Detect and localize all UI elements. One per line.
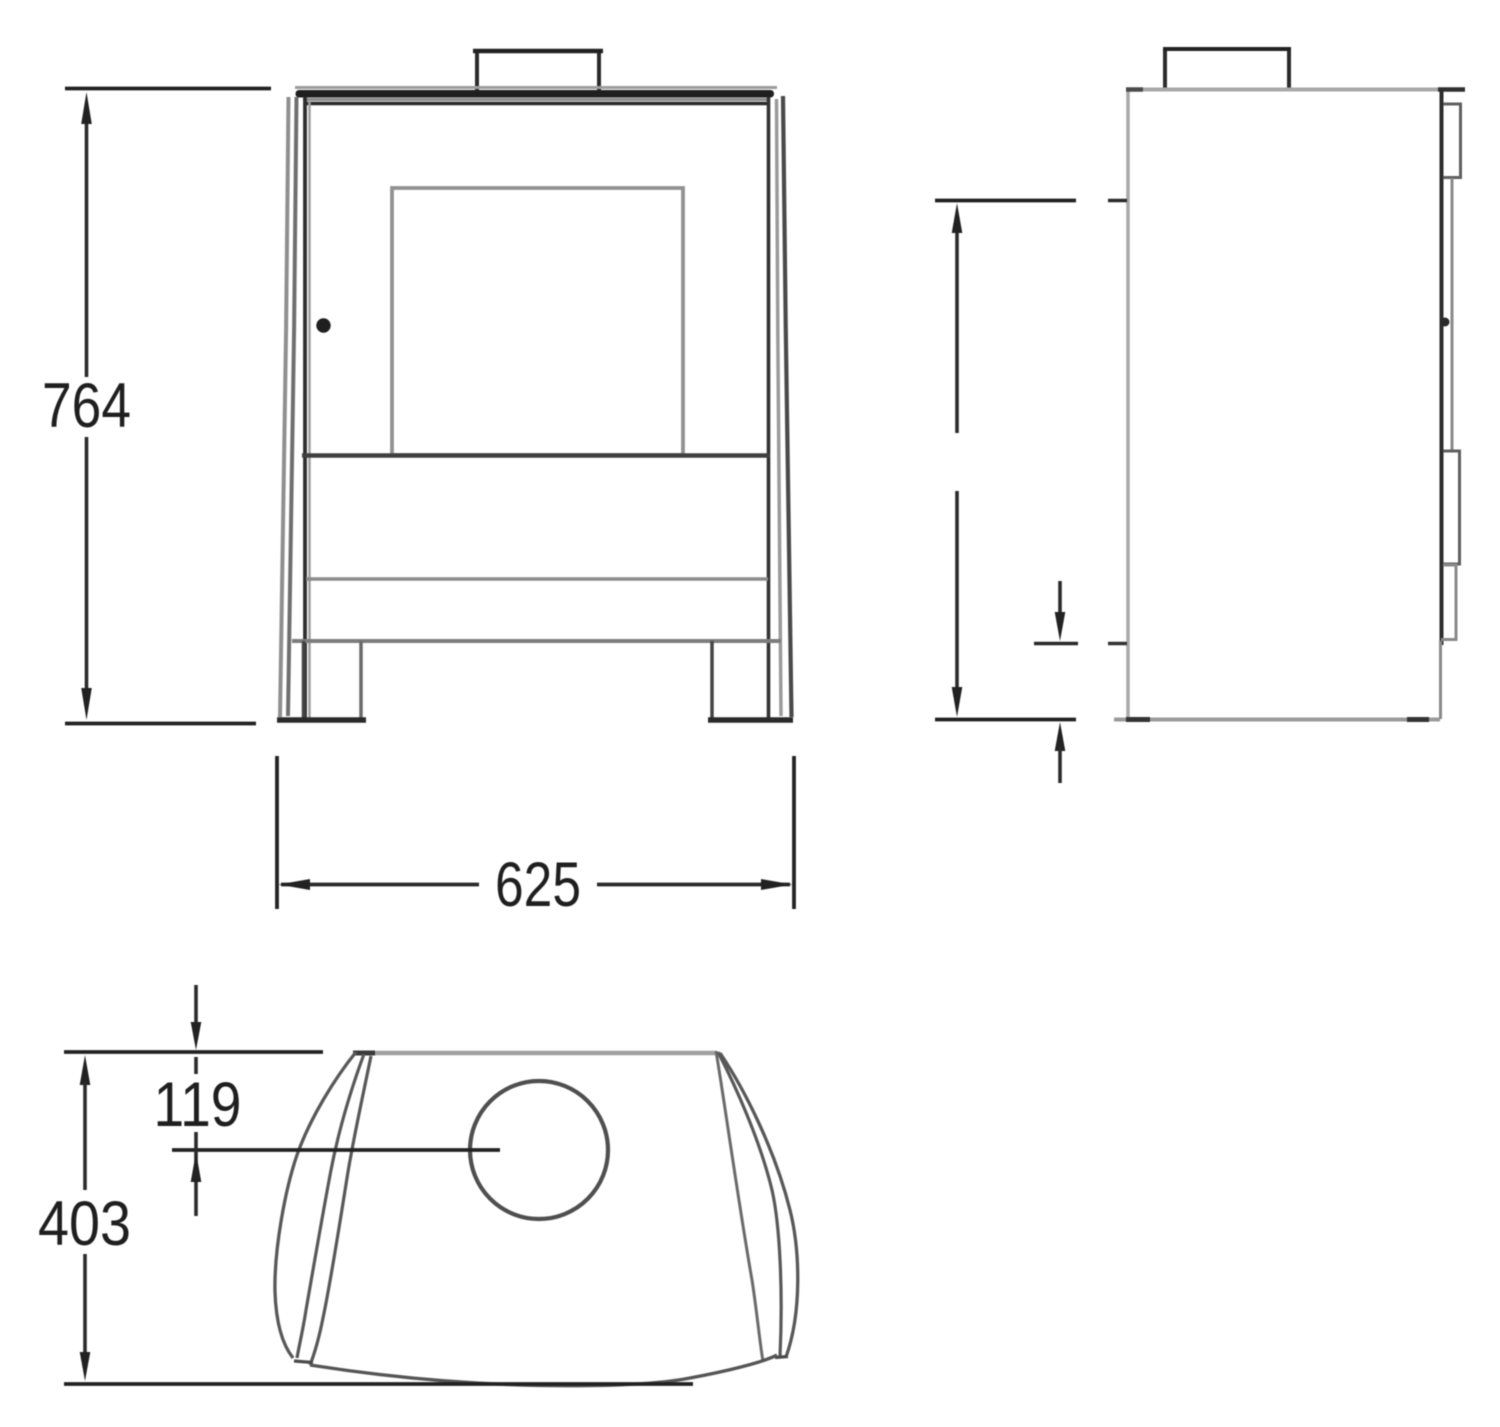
svg-text:764: 764 [42,371,131,441]
svg-text:625: 625 [495,850,581,920]
svg-text:403: 403 [38,1189,131,1259]
svg-text:119: 119 [154,1070,242,1140]
